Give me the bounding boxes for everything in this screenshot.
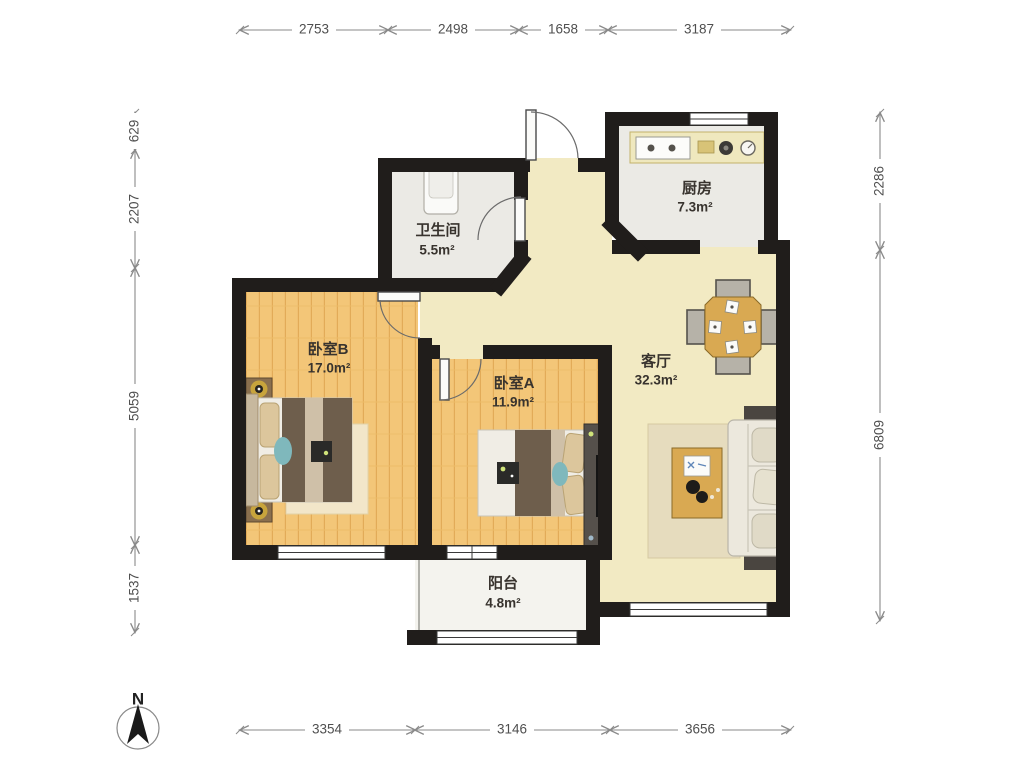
svg-text:2207: 2207 — [127, 194, 142, 224]
north-label: N — [132, 689, 144, 708]
bedroom-b-bed — [246, 378, 352, 522]
svg-text:3354: 3354 — [312, 722, 343, 737]
pillow — [260, 455, 279, 499]
floor-plan-drawing: 卫生间 5.5m² 厨房 7.3m² 卧室B 17.0m² 卧室A 11.9m²… — [0, 0, 1024, 768]
balcony-floor — [415, 556, 600, 632]
svg-text:2286: 2286 — [872, 166, 887, 196]
kitchen-counter — [630, 132, 764, 163]
dimensions-right: 2286 6809 — [872, 109, 889, 624]
dim-top-1: 2753 — [292, 21, 336, 38]
dim-right-2: 6809 — [872, 413, 889, 457]
living-label: 客厅 — [640, 352, 671, 370]
dimensions-bottom: 3354 3146 3656 — [236, 721, 794, 738]
kitchen-area: 7.3m² — [677, 200, 713, 215]
entry-door — [526, 110, 578, 160]
bedroom-b-label: 卧室B — [308, 340, 349, 358]
living-room-window — [630, 603, 767, 616]
headboard — [246, 394, 258, 506]
cutting-board — [698, 141, 714, 153]
dining-chair — [716, 280, 750, 298]
dim-left-4: 1537 — [127, 566, 144, 610]
bedroom-b-window — [278, 546, 385, 559]
laptop — [497, 462, 519, 484]
svg-text:6809: 6809 — [872, 420, 887, 450]
svg-text:2753: 2753 — [299, 22, 329, 37]
bedroom-a-area: 11.9m² — [492, 395, 535, 410]
dim-bottom-2: 3146 — [490, 721, 534, 738]
dining-chair — [716, 356, 750, 374]
dim-left-2: 2207 — [127, 187, 144, 231]
living-area: 32.3m² — [635, 373, 678, 388]
dim-left-3: 5059 — [127, 384, 144, 428]
floor-plan-page: { "plan": { "title": "two-bedroom apartm… — [0, 0, 1024, 768]
svg-text:3187: 3187 — [684, 22, 714, 37]
blanket — [515, 430, 551, 516]
dimensions-left: 629 2207 5059 1537 — [127, 109, 144, 636]
bathroom-label: 卫生间 — [415, 221, 460, 239]
bedroom-a-bed — [478, 426, 598, 520]
dim-bottom-1: 3354 — [305, 721, 349, 738]
dim-top-2: 2498 — [431, 21, 475, 38]
svg-text:3656: 3656 — [685, 722, 715, 737]
accent-pillow — [274, 437, 292, 465]
coffee-table — [672, 448, 722, 518]
svg-text:629: 629 — [127, 120, 142, 143]
dim-right-1: 2286 — [872, 159, 889, 203]
dining-chair — [687, 310, 705, 344]
teapot — [686, 480, 700, 494]
teacup — [696, 491, 708, 503]
dim-top-4: 3187 — [677, 21, 721, 38]
balcony-area: 4.8m² — [485, 596, 521, 611]
bedroom-a-label: 卧室A — [494, 374, 535, 392]
dim-left-1: 629 — [127, 113, 144, 149]
bedroom-b-area: 17.0m² — [308, 361, 351, 376]
dim-top-3: 1658 — [541, 21, 585, 38]
balcony-label: 阳台 — [488, 574, 518, 592]
svg-text:5059: 5059 — [127, 391, 142, 421]
svg-text:3146: 3146 — [497, 722, 527, 737]
dimensions-top: 2753 2498 1658 3187 — [236, 21, 794, 38]
laptop — [311, 441, 332, 462]
kitchen-sink — [636, 137, 690, 159]
bathroom-area: 5.5m² — [419, 243, 455, 258]
dim-bottom-3: 3656 — [678, 721, 722, 738]
accent-pillow — [552, 462, 568, 486]
pillow — [260, 403, 279, 447]
svg-text:2498: 2498 — [438, 22, 468, 37]
north-arrow-icon — [127, 704, 149, 744]
magazine — [684, 456, 710, 476]
balcony-door-window — [447, 546, 497, 559]
svg-text:1537: 1537 — [127, 573, 142, 603]
balcony-window — [437, 631, 577, 644]
kitchen-label: 厨房 — [682, 179, 712, 197]
svg-text:1658: 1658 — [548, 22, 578, 37]
compass: N — [117, 689, 159, 749]
kitchen-window — [690, 113, 748, 125]
